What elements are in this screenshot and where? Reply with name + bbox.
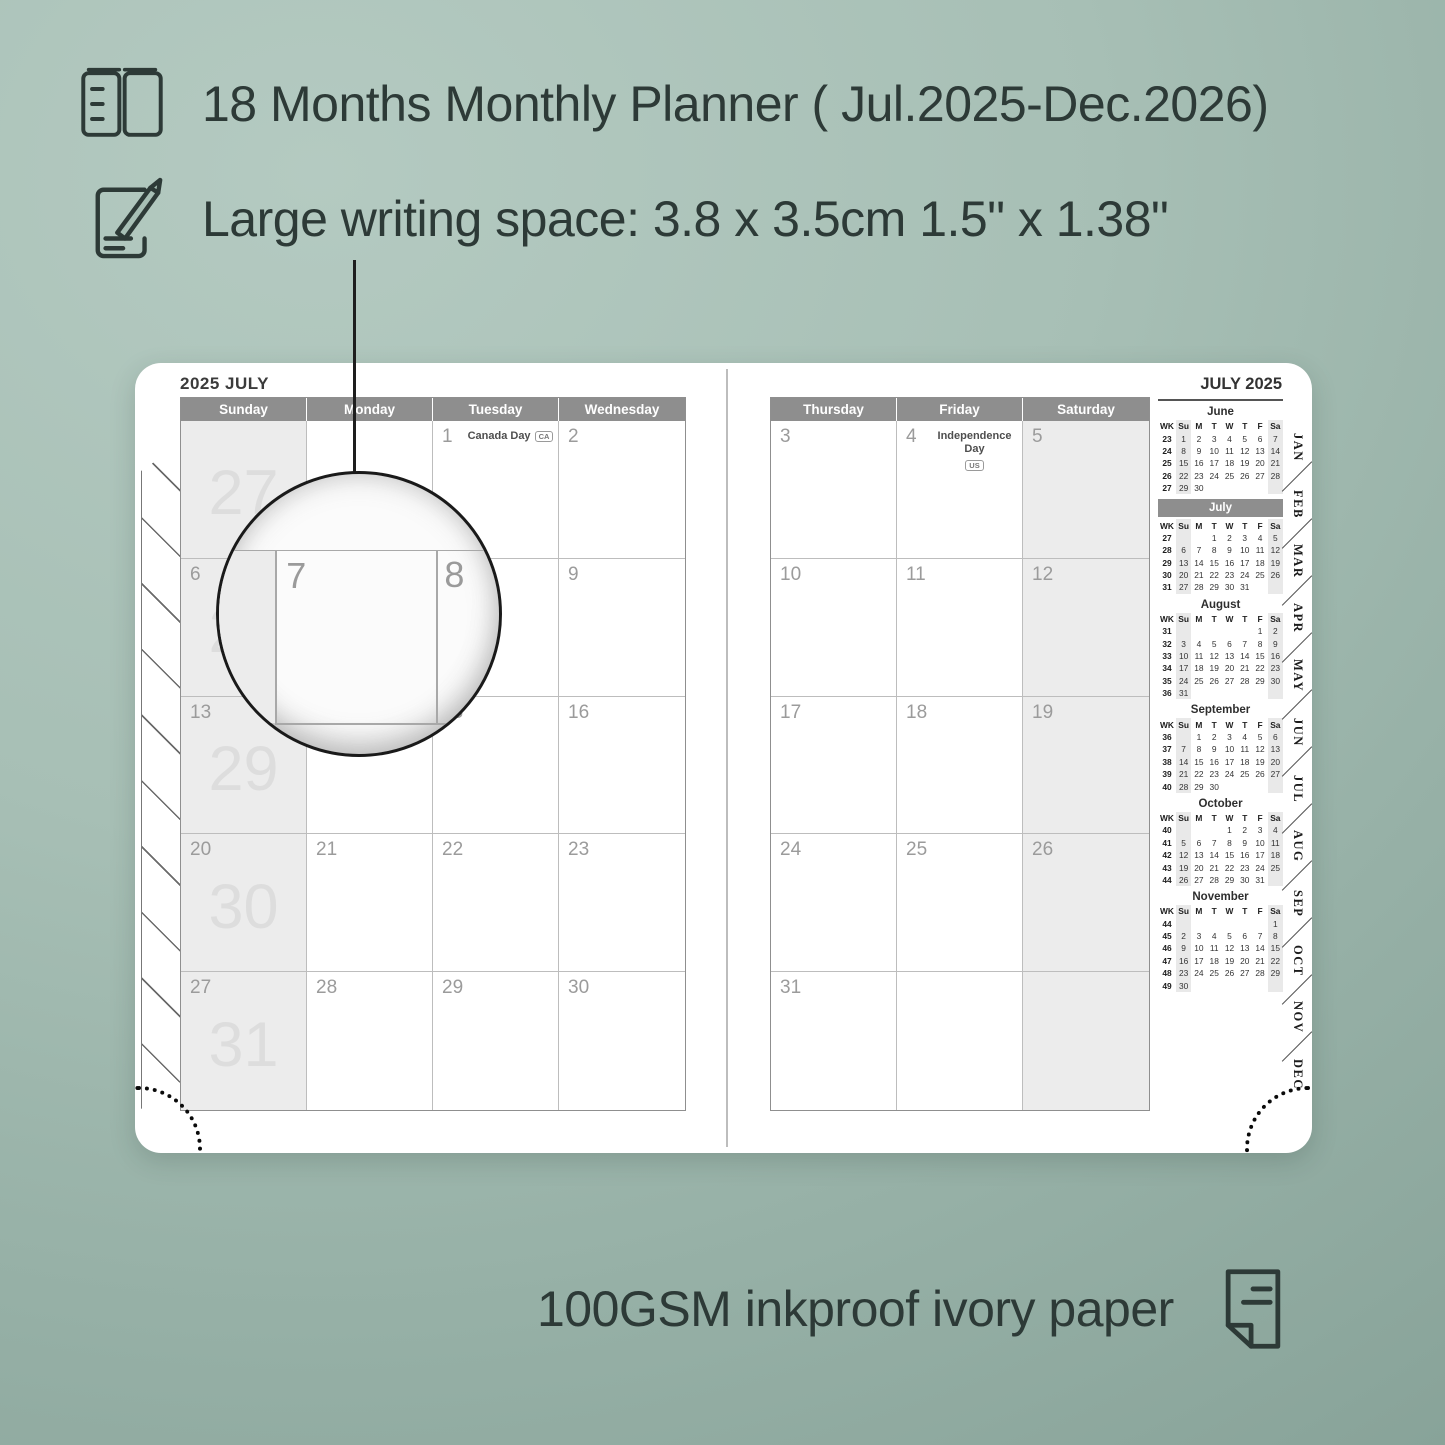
mini-date: 6 <box>1252 432 1267 444</box>
mini-day-header: T <box>1207 613 1222 625</box>
mini-date: 5 <box>1237 432 1252 444</box>
mini-calendar-week-row: 3524252627282930 <box>1158 675 1283 687</box>
mini-calendar-week-row: 4823242526272829 <box>1158 967 1283 979</box>
mini-date: 10 <box>1207 445 1222 457</box>
mini-day-header: Sa <box>1268 718 1283 730</box>
mini-calendar-week-row: 2515161718192021 <box>1158 457 1283 469</box>
mini-day-header: F <box>1252 905 1267 917</box>
date-number: 29 <box>442 977 463 999</box>
mini-calendar-week-row: 3112 <box>1158 625 1283 637</box>
mini-date: 13 <box>1237 942 1252 954</box>
mini-date <box>1222 687 1237 699</box>
mini-week-number: 34 <box>1158 662 1176 674</box>
mini-date: 8 <box>1268 930 1283 942</box>
mini-date: 26 <box>1268 569 1283 581</box>
mini-date <box>1268 780 1283 792</box>
mini-date: 22 <box>1191 768 1206 780</box>
mini-date: 20 <box>1237 955 1252 967</box>
mini-week-number: 36 <box>1158 687 1176 699</box>
mini-date: 8 <box>1252 637 1267 649</box>
calendar-cell: 25 <box>897 834 1023 972</box>
mini-date: 22 <box>1252 662 1267 674</box>
mini-day-header: M <box>1191 905 1206 917</box>
mini-day-header: F <box>1252 812 1267 824</box>
mini-date: 26 <box>1176 874 1191 886</box>
mini-calendar-week-row: 4212131415161718 <box>1158 849 1283 861</box>
mini-calendar-title: July <box>1158 499 1283 517</box>
mini-calendar-table: WKSuMTWTFSa27123452867891011122913141516… <box>1158 519 1283 593</box>
mini-date: 17 <box>1176 662 1191 674</box>
mini-date: 6 <box>1176 544 1191 556</box>
calendar-cell: 4Independence DayUS <box>897 421 1023 559</box>
mini-calendar-week-row: 3310111213141516 <box>1158 650 1283 662</box>
magnified-gridline <box>275 723 499 725</box>
open-book-icon <box>78 66 166 142</box>
mini-date: 23 <box>1237 861 1252 873</box>
date-number: 4 <box>906 426 917 448</box>
mini-day-header: T <box>1237 613 1252 625</box>
mini-week-number: 47 <box>1158 955 1176 967</box>
magnified-gridline <box>275 550 277 724</box>
mini-date: 4 <box>1252 532 1267 544</box>
mini-calendar: JulyWKSuMTWTFSa2712345286789101112291314… <box>1158 499 1283 593</box>
mini-date <box>1222 780 1237 792</box>
mini-date: 19 <box>1176 861 1191 873</box>
day-header: Friday <box>897 398 1023 421</box>
mini-date: 15 <box>1222 849 1237 861</box>
mini-date <box>1268 687 1283 699</box>
mini-date: 9 <box>1237 837 1252 849</box>
mini-date: 25 <box>1237 768 1252 780</box>
holiday-name: Independence Day <box>931 430 1018 456</box>
mini-day-header: WK <box>1158 905 1176 917</box>
mini-date: 29 <box>1207 581 1222 593</box>
mini-date: 11 <box>1237 743 1252 755</box>
mini-date: 13 <box>1252 445 1267 457</box>
mini-date: 22 <box>1207 569 1222 581</box>
mini-day-header: WK <box>1158 613 1176 625</box>
mini-date: 14 <box>1268 445 1283 457</box>
calendar-cell: 9 <box>559 559 685 697</box>
mini-calendar: OctoberWKSuMTWTFSa4012344156789101142121… <box>1158 798 1283 886</box>
mini-calendar-week-row: 3814151617181920 <box>1158 756 1283 768</box>
mini-day-header: WK <box>1158 812 1176 824</box>
mini-date: 29 <box>1268 967 1283 979</box>
mini-date: 7 <box>1176 743 1191 755</box>
mini-week-number: 40 <box>1158 780 1176 792</box>
mini-calendar: AugustWKSuMTWTFSa31123234567893310111213… <box>1158 599 1283 700</box>
calendar-cell: 5 <box>1023 421 1149 559</box>
mini-date: 2 <box>1176 930 1191 942</box>
mini-day-header: T <box>1237 519 1252 531</box>
date-number: 9 <box>568 564 579 586</box>
mini-date <box>1191 824 1206 836</box>
country-badge: US <box>965 460 983 471</box>
day-header: Saturday <box>1023 398 1149 421</box>
mini-week-number: 29 <box>1158 557 1176 569</box>
mini-date: 13 <box>1222 650 1237 662</box>
mini-day-header: Su <box>1176 613 1191 625</box>
mini-date: 5 <box>1268 532 1283 544</box>
mini-date: 30 <box>1222 581 1237 593</box>
mini-day-header: Sa <box>1268 812 1283 824</box>
mini-calendar-week-row: 3631 <box>1158 687 1283 699</box>
mini-date: 23 <box>1176 967 1191 979</box>
mini-day-header: Su <box>1176 718 1191 730</box>
mini-calendar-header-row: WKSuMTWTFSa <box>1158 812 1283 824</box>
mini-week-number: 42 <box>1158 849 1176 861</box>
mini-date: 22 <box>1176 470 1191 482</box>
mini-week-number: 24 <box>1158 445 1176 457</box>
mini-calendar-week-row: 3921222324252627 <box>1158 768 1283 780</box>
mini-calendar-title: November <box>1158 891 1283 903</box>
paper-sheet-icon <box>1216 1266 1290 1352</box>
mini-day-header: Sa <box>1268 519 1283 531</box>
mini-date: 4 <box>1207 930 1222 942</box>
mini-date: 1 <box>1207 532 1222 544</box>
mini-calendar-week-row: 4319202122232425 <box>1158 861 1283 873</box>
mini-date: 18 <box>1207 955 1222 967</box>
mini-date <box>1252 979 1267 991</box>
mini-date: 23 <box>1207 768 1222 780</box>
mini-date: 27 <box>1268 768 1283 780</box>
mini-week-number: 45 <box>1158 930 1176 942</box>
mini-date <box>1176 625 1191 637</box>
mini-day-header: F <box>1252 718 1267 730</box>
date-number: 17 <box>780 702 801 724</box>
mini-calendar-table: WKSuMTWTFSa40123441567891011421213141516… <box>1158 812 1283 886</box>
date-number: 11 <box>906 564 926 586</box>
mini-date: 6 <box>1268 731 1283 743</box>
mini-week-number: 44 <box>1158 874 1176 886</box>
mini-date <box>1207 918 1222 930</box>
date-number: 1 <box>442 426 453 448</box>
mini-date <box>1191 532 1206 544</box>
mini-date: 12 <box>1252 743 1267 755</box>
mini-date: 10 <box>1176 650 1191 662</box>
date-number: 25 <box>906 839 927 861</box>
mini-calendar-week-row: 36123456 <box>1158 731 1283 743</box>
mini-calendar-title: October <box>1158 798 1283 810</box>
feature-writing-space: Large writing space: 3.8 x 3.5cm 1.5" x … <box>88 176 1168 262</box>
mini-date: 19 <box>1268 557 1283 569</box>
mini-date: 8 <box>1207 544 1222 556</box>
mini-date: 24 <box>1207 470 1222 482</box>
month-tab-label: JUN <box>1290 718 1305 747</box>
mini-date: 16 <box>1222 557 1237 569</box>
date-number: 24 <box>780 839 801 861</box>
mini-date: 11 <box>1252 544 1267 556</box>
mini-calendar-table: WKSuMTWTFSa36123456377891011121338141516… <box>1158 718 1283 792</box>
month-tab-label: JUL <box>1290 775 1305 803</box>
month-tab-label: NOV <box>1290 1001 1305 1033</box>
month-tab-jan: JAN <box>1283 419 1312 476</box>
mini-date: 21 <box>1191 569 1206 581</box>
mini-date: 3 <box>1207 432 1222 444</box>
calendar-cell: 29 <box>433 972 559 1110</box>
mini-day-header: T <box>1207 519 1222 531</box>
mini-week-number: 43 <box>1158 861 1176 873</box>
page-spine <box>726 369 728 1147</box>
mini-date: 7 <box>1268 432 1283 444</box>
mini-date: 5 <box>1252 731 1267 743</box>
mini-date: 30 <box>1268 675 1283 687</box>
holiday-label: Independence DayUS <box>931 430 1018 471</box>
mini-date: 16 <box>1268 650 1283 662</box>
mini-calendar-table: WKSuMTWTFSa23123456724891011121314251516… <box>1158 420 1283 494</box>
mini-date: 2 <box>1207 731 1222 743</box>
month-tab-label: MAY <box>1290 659 1305 692</box>
calendar-cell: 10 <box>771 559 897 697</box>
mini-date: 7 <box>1207 837 1222 849</box>
mini-date: 11 <box>1191 650 1206 662</box>
mini-date: 21 <box>1207 861 1222 873</box>
mini-date: 11 <box>1268 837 1283 849</box>
mini-date <box>1176 731 1191 743</box>
calendar-cell: 3 <box>771 421 897 559</box>
date-number: 10 <box>780 564 801 586</box>
mini-calendar-week-row: 272930 <box>1158 482 1283 494</box>
mini-date: 10 <box>1191 942 1206 954</box>
calendar-cell <box>1023 972 1149 1110</box>
magnified-sunday-shade <box>219 550 275 724</box>
mini-date: 11 <box>1207 942 1222 954</box>
calendar-cell: 3127 <box>181 972 307 1110</box>
mini-date: 17 <box>1222 756 1237 768</box>
mini-day-header: T <box>1237 905 1252 917</box>
page-edge-hatch <box>141 441 185 1109</box>
mini-date: 6 <box>1237 930 1252 942</box>
mini-week-number: 27 <box>1158 532 1176 544</box>
mini-date <box>1237 979 1252 991</box>
mini-week-number: 37 <box>1158 743 1176 755</box>
day-header: Wednesday <box>559 398 685 421</box>
mini-calendar-header-row: WKSuMTWTFSa <box>1158 905 1283 917</box>
mini-date <box>1191 625 1206 637</box>
month-tab-label: JAN <box>1290 433 1305 462</box>
mini-date <box>1191 918 1206 930</box>
mini-date: 24 <box>1252 861 1267 873</box>
mini-date: 2 <box>1222 532 1237 544</box>
mini-date <box>1207 625 1222 637</box>
mini-day-header: F <box>1252 613 1267 625</box>
mini-date: 12 <box>1237 445 1252 457</box>
mini-date: 26 <box>1237 470 1252 482</box>
mini-week-number: 41 <box>1158 837 1176 849</box>
mini-date <box>1207 687 1222 699</box>
mini-date: 24 <box>1176 675 1191 687</box>
feature-paper: 100GSM inkproof ivory paper <box>537 1266 1290 1352</box>
mini-day-header: T <box>1207 905 1222 917</box>
mini-calendar-week-row: 4930 <box>1158 979 1283 991</box>
mini-date <box>1252 780 1267 792</box>
mini-date: 26 <box>1252 768 1267 780</box>
mini-date: 2 <box>1237 824 1252 836</box>
mini-date: 14 <box>1237 650 1252 662</box>
month-tab-nov: NOV <box>1283 989 1312 1046</box>
mini-calendar-week-row: 323456789 <box>1158 637 1283 649</box>
calendar-cell: 3020 <box>181 834 307 972</box>
mini-day-header: W <box>1222 718 1237 730</box>
mini-date: 24 <box>1237 569 1252 581</box>
mini-date: 10 <box>1222 743 1237 755</box>
mini-date: 21 <box>1237 662 1252 674</box>
mini-date: 10 <box>1252 837 1267 849</box>
mini-date <box>1191 687 1206 699</box>
mini-calendar-title: June <box>1158 406 1283 418</box>
magnified-gridline <box>436 550 438 724</box>
mini-calendar-week-row: 441 <box>1158 918 1283 930</box>
mini-date: 28 <box>1207 874 1222 886</box>
mini-week-number: 32 <box>1158 637 1176 649</box>
mini-date: 1 <box>1268 918 1283 930</box>
calendar-cell: 21 <box>307 834 433 972</box>
feature-writing-space-text: Large writing space: 3.8 x 3.5cm 1.5" x … <box>202 190 1168 248</box>
feature-paper-text: 100GSM inkproof ivory paper <box>537 1280 1174 1338</box>
mini-day-header: Sa <box>1268 905 1283 917</box>
mini-week-number: 23 <box>1158 432 1176 444</box>
calendar-cell: 11 <box>897 559 1023 697</box>
mini-date: 4 <box>1191 637 1206 649</box>
mini-date <box>1237 625 1252 637</box>
sidebar-month-title: JULY 2025 <box>1158 373 1283 401</box>
calendar-cell: 2 <box>559 421 685 559</box>
month-tab-aug: AUG <box>1283 818 1312 875</box>
mini-calendar-week-row: 24891011121314 <box>1158 445 1283 457</box>
calendar-cell: 22 <box>433 834 559 972</box>
day-header: Sunday <box>181 398 307 421</box>
mini-calendar-header-row: WKSuMTWTFSa <box>1158 420 1283 432</box>
date-number: 6 <box>190 564 201 586</box>
mini-date: 3 <box>1222 731 1237 743</box>
mini-date: 7 <box>1252 930 1267 942</box>
mini-calendar-week-row: 231234567 <box>1158 432 1283 444</box>
mini-date <box>1207 979 1222 991</box>
mini-date: 18 <box>1191 662 1206 674</box>
mini-date: 17 <box>1207 457 1222 469</box>
mini-date: 3 <box>1252 824 1267 836</box>
mini-date: 20 <box>1222 662 1237 674</box>
mini-calendar-week-row: 40282930 <box>1158 780 1283 792</box>
date-number: 13 <box>190 702 211 724</box>
date-number: 27 <box>190 977 211 999</box>
mini-calendar-week-row: 312728293031 <box>1158 581 1283 593</box>
mini-date: 16 <box>1207 756 1222 768</box>
mini-calendar-week-row: 4716171819202122 <box>1158 955 1283 967</box>
month-tab-mar: MAR <box>1283 533 1312 590</box>
mini-date: 29 <box>1191 780 1206 792</box>
mini-calendar-table: WKSuMTWTFSa31123234567893310111213141516… <box>1158 613 1283 700</box>
mini-date: 27 <box>1222 675 1237 687</box>
mini-date: 28 <box>1176 780 1191 792</box>
mini-date: 19 <box>1252 756 1267 768</box>
mini-date: 15 <box>1268 942 1283 954</box>
mini-date: 28 <box>1237 675 1252 687</box>
date-number: 19 <box>1032 702 1053 724</box>
mini-date <box>1191 979 1206 991</box>
mini-date: 19 <box>1237 457 1252 469</box>
mini-date: 26 <box>1222 967 1237 979</box>
date-number: 3 <box>780 426 791 448</box>
mini-date: 20 <box>1268 756 1283 768</box>
mini-week-number: 31 <box>1158 625 1176 637</box>
mini-week-number: 46 <box>1158 942 1176 954</box>
mini-date: 1 <box>1176 432 1191 444</box>
mini-date: 13 <box>1176 557 1191 569</box>
date-number: 26 <box>1032 839 1053 861</box>
mini-date: 9 <box>1222 544 1237 556</box>
mini-calendar-week-row: 469101112131415 <box>1158 942 1283 954</box>
mini-date: 21 <box>1252 955 1267 967</box>
mini-date: 25 <box>1252 569 1267 581</box>
mini-date <box>1252 482 1267 494</box>
mini-date: 7 <box>1191 544 1206 556</box>
mini-week-number: 28 <box>1158 544 1176 556</box>
mini-date: 30 <box>1191 482 1206 494</box>
mini-date: 2 <box>1191 432 1206 444</box>
mini-date: 28 <box>1252 967 1267 979</box>
day-header: Thursday <box>771 398 897 421</box>
mini-week-number: 38 <box>1158 756 1176 768</box>
magnified-gridline <box>233 550 485 552</box>
mini-date: 25 <box>1222 470 1237 482</box>
mini-date: 12 <box>1222 942 1237 954</box>
mini-date: 16 <box>1191 457 1206 469</box>
mini-week-number: 25 <box>1158 457 1176 469</box>
mini-date: 15 <box>1207 557 1222 569</box>
mini-week-number: 39 <box>1158 768 1176 780</box>
mini-date: 1 <box>1222 824 1237 836</box>
mini-date: 29 <box>1252 675 1267 687</box>
mini-day-header: W <box>1222 519 1237 531</box>
mini-date: 20 <box>1191 861 1206 873</box>
mini-date: 5 <box>1207 637 1222 649</box>
mini-day-header: M <box>1191 519 1206 531</box>
mini-day-header: T <box>1207 812 1222 824</box>
mini-day-header: Sa <box>1268 420 1283 432</box>
mini-date: 21 <box>1268 457 1283 469</box>
mini-calendar-week-row: 3778910111213 <box>1158 743 1283 755</box>
mini-day-header: W <box>1222 905 1237 917</box>
day-header: Monday <box>307 398 433 421</box>
mini-week-number: 48 <box>1158 967 1176 979</box>
mini-date: 23 <box>1191 470 1206 482</box>
date-number: 30 <box>568 977 589 999</box>
mini-date: 18 <box>1222 457 1237 469</box>
month-tab-label: APR <box>1290 603 1305 633</box>
mini-date: 13 <box>1191 849 1206 861</box>
mini-day-header: T <box>1237 812 1252 824</box>
holiday-label: Canada DayCA <box>467 430 554 443</box>
mini-week-number: 40 <box>1158 824 1176 836</box>
mini-calendar-sidebar: JULY 2025 JuneWKSuMTWTFSa231234567248910… <box>1158 373 1283 992</box>
mini-date: 3 <box>1191 930 1206 942</box>
mini-date: 1 <box>1191 731 1206 743</box>
month-tab-apr: APR <box>1283 590 1312 647</box>
calendar-cell <box>897 972 1023 1110</box>
mini-date: 11 <box>1222 445 1237 457</box>
mini-date <box>1252 687 1267 699</box>
mini-date: 25 <box>1268 861 1283 873</box>
mini-date: 16 <box>1176 955 1191 967</box>
mini-date: 4 <box>1237 731 1252 743</box>
calendar-cell: 18 <box>897 697 1023 835</box>
calendar-cell: 28 <box>307 972 433 1110</box>
mini-day-header: M <box>1191 613 1206 625</box>
mini-week-number: 33 <box>1158 650 1176 662</box>
date-number: 31 <box>780 977 801 999</box>
date-number: 20 <box>190 839 211 861</box>
